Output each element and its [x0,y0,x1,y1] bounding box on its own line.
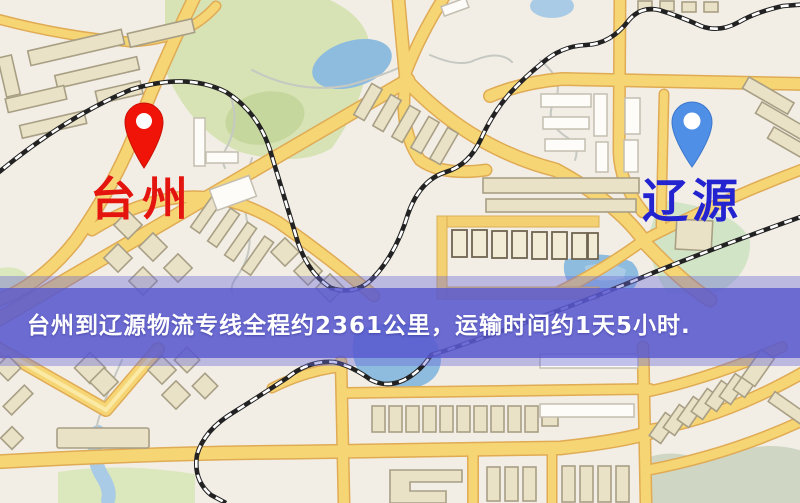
destination-label: 辽源 [642,178,742,224]
destination-pin-icon [668,100,716,170]
map-screenshot: 台州 辽源 台州到辽源物流专线全程约2361公里，运输时间约1天5小时. [0,0,800,503]
route-info-text: 台州到辽源物流专线全程约2361公里，运输时间约1天5小时. [27,306,691,340]
origin-label: 台州 [90,176,194,222]
route-info-banner: 台州到辽源物流专线全程约2361公里，运输时间约1天5小时. [0,288,800,358]
origin-pin-icon [121,101,167,171]
map-canvas [0,0,800,503]
